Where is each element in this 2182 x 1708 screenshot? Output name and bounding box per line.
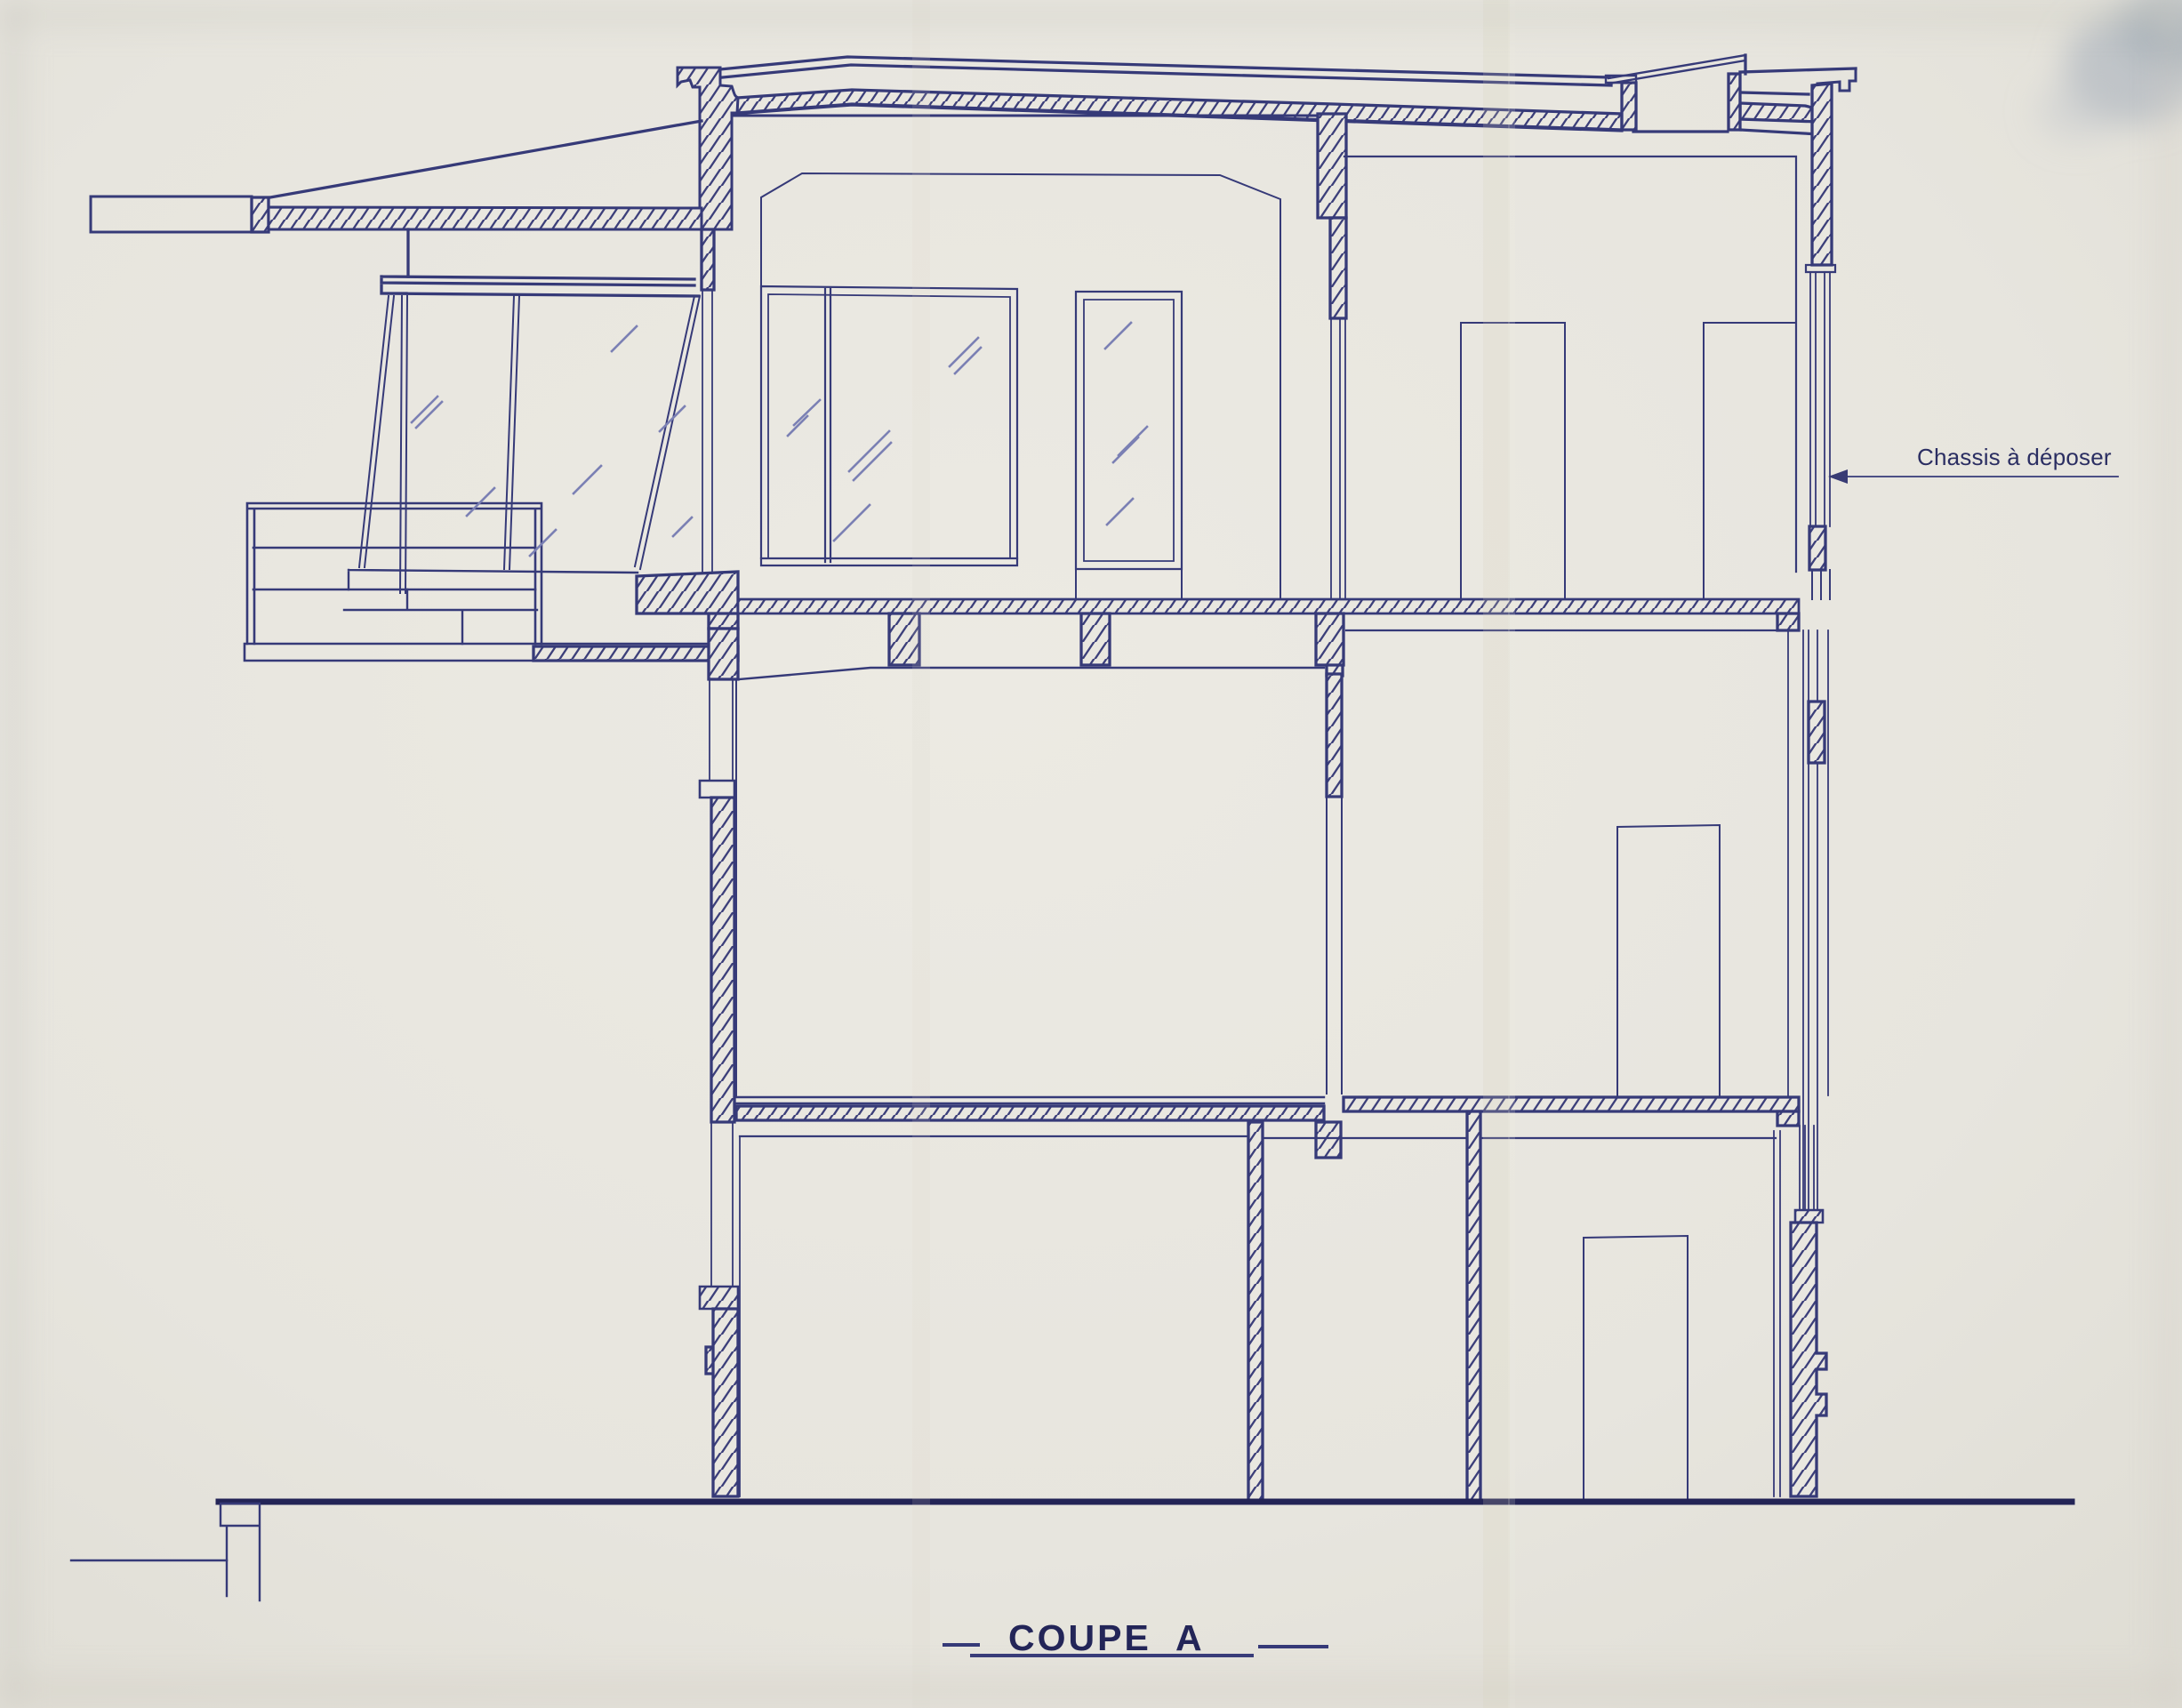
svg-text:A: A: [1175, 1617, 1202, 1658]
svg-text:COUPE: COUPE: [1008, 1617, 1151, 1658]
svg-text:Chassis à déposer: Chassis à déposer: [1917, 444, 2112, 470]
